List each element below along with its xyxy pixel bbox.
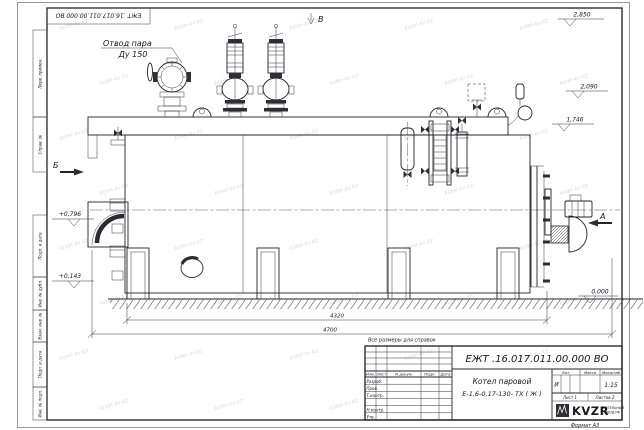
row-prov: Пров.: [367, 386, 379, 391]
col-sign: Подп.: [424, 372, 436, 377]
watermark-layer: [59, 18, 589, 412]
dim-4320-label: 4320: [330, 314, 344, 320]
col-list: Лист: [376, 372, 387, 377]
steam-outlet-label: Отвод пара: [103, 39, 152, 48]
support-legs: [127, 248, 519, 299]
front-door: [88, 202, 128, 247]
dim-4700-label: 4700: [323, 328, 337, 334]
drawing-sheet: { "sheet": { "stamp_top": "ЕЖТ .16.017.0…: [0, 0, 644, 430]
burner: [545, 189, 592, 252]
left-fittings: [110, 127, 125, 280]
title-doc-number: ЕЖТ .16.017.011.00.000 ВО: [466, 354, 609, 365]
rear-flange: [531, 166, 550, 287]
lit-value: И: [554, 382, 559, 389]
row-razrab: Разраб.: [367, 379, 383, 384]
reference-note: Все размеры для справок: [368, 338, 436, 344]
view-label-b: В: [318, 15, 324, 24]
margin-label: Инв. № дубл.: [38, 280, 43, 307]
elevation-label: 0,000: [591, 289, 608, 296]
view-label-b-side: Б: [53, 161, 59, 170]
scale-header: Масштаб: [602, 370, 621, 375]
ground-hatch: [108, 299, 643, 309]
doc-number-stamp-rotated: ЕЖТ .16.017.011.00.000 ВО: [47, 8, 150, 24]
sheets-total: Листов 2: [595, 395, 615, 400]
product-name: Котел паровой: [473, 377, 532, 386]
row-nkontr: Н.контр.: [367, 408, 385, 413]
row-tkontr: Т.контр.: [367, 393, 384, 398]
elevation-label: +0,796: [59, 211, 81, 218]
margin-label: Инв. № подл.: [38, 390, 43, 418]
elevation-label: 1,746: [566, 117, 583, 124]
sheet-number: Лист 1: [562, 395, 577, 400]
product-code: Е-1,6-0,17-130- ТХ ( Ж ): [462, 390, 541, 398]
format-label: Формат А3: [571, 423, 599, 429]
water-level-gauges: [401, 117, 469, 186]
margin-label: Справ. №: [38, 135, 43, 154]
safety-valve: [258, 24, 294, 117]
safety-valve: [217, 24, 253, 117]
margin-label: Перв. примен.: [38, 58, 43, 88]
steam-outlet-dn-label: Ду 150: [118, 50, 148, 59]
logo-sub1: КОТЕЛЬНЫЙ: [603, 405, 625, 410]
elevation-label: 2,850: [573, 12, 590, 19]
mass-header: Масса: [584, 370, 597, 375]
manhole: [181, 258, 203, 278]
logo-sub2: ЗАВОД РФ: [603, 411, 620, 415]
boiler-body: [90, 135, 620, 293]
stamp-text: ЕЖТ .16.017.011.00.000 ВО: [55, 12, 141, 19]
margin-label: Подп. и дата: [38, 350, 43, 378]
row-utv: Утв.: [367, 415, 375, 420]
logo: KVZR КОТЕЛЬНЫЙ ЗАВОД РФ: [556, 404, 625, 418]
view-label-a: А: [599, 212, 605, 221]
scale-value: 1:15: [604, 382, 618, 389]
col-date: Дата: [440, 372, 452, 377]
safety-valves: [217, 24, 294, 117]
col-doc: N докум.: [395, 372, 413, 377]
pressure-gauge: [468, 84, 532, 125]
elevation-label: 2,090: [580, 84, 597, 91]
margin-column: Перв. примен. Справ. № Подп. и дата Инв.…: [33, 30, 47, 420]
elevation-label: +0,143: [59, 273, 81, 280]
margin-label: Подп. и дата: [38, 232, 43, 260]
lit-header: Лит.: [561, 370, 571, 375]
col-izm: Изм.: [366, 372, 375, 377]
margin-label: Взам. инв. №: [38, 312, 43, 339]
drawing-canvas: kotel-kv.kz: [0, 0, 644, 430]
